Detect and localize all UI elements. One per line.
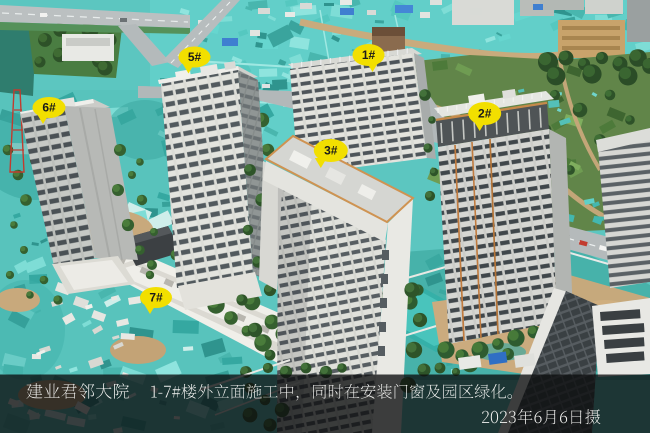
svg-text:3#: 3# [324,144,338,158]
svg-text:5#: 5# [188,50,202,64]
svg-text:1#: 1# [362,48,376,62]
svg-text:7#: 7# [149,291,163,305]
svg-text:2#: 2# [478,107,492,121]
svg-text:6#: 6# [42,101,56,115]
